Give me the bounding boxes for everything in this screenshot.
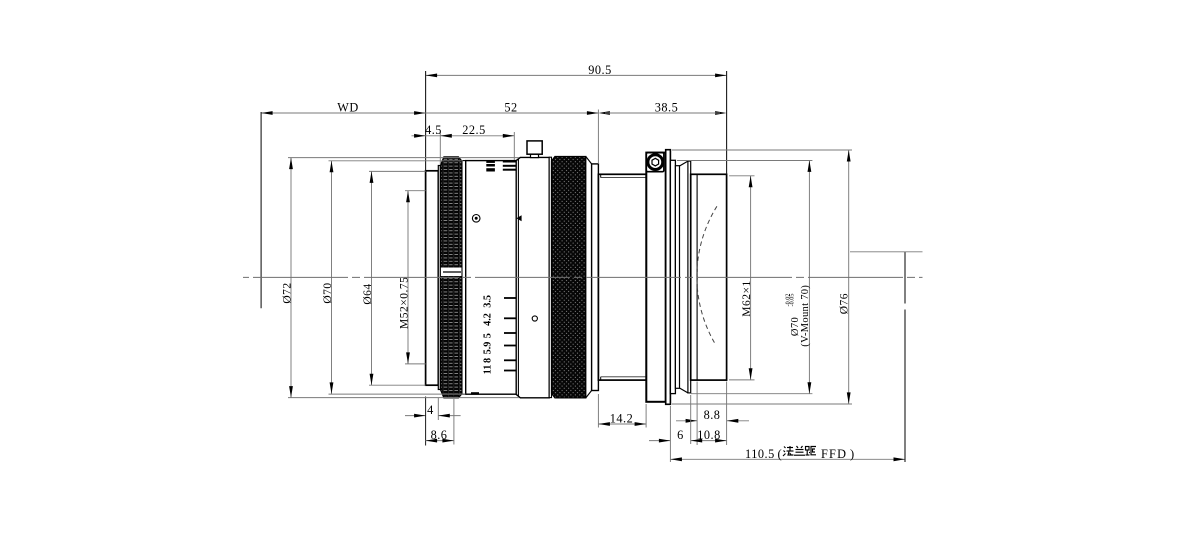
svg-text:5: 5 xyxy=(482,333,493,338)
svg-text:(: ( xyxy=(778,447,782,461)
svg-text:WD: WD xyxy=(337,100,359,114)
svg-text:11: 11 xyxy=(482,365,493,375)
svg-text:-0.05: -0.05 xyxy=(788,294,795,307)
svg-text:3.5: 3.5 xyxy=(482,295,493,308)
svg-text:5.9: 5.9 xyxy=(482,342,493,355)
svg-text:4: 4 xyxy=(427,403,434,417)
svg-text:): ) xyxy=(850,447,854,461)
svg-text:M52×0.75: M52×0.75 xyxy=(398,277,410,329)
svg-text:90.5: 90.5 xyxy=(588,63,612,77)
svg-text:14.2: 14.2 xyxy=(610,411,634,425)
svg-text:Ø64: Ø64 xyxy=(362,283,374,304)
svg-text:6: 6 xyxy=(677,428,684,442)
svg-text:4.2: 4.2 xyxy=(482,313,493,326)
svg-text:10.8: 10.8 xyxy=(697,428,721,442)
svg-text:Ø72: Ø72 xyxy=(281,282,293,303)
svg-text:4.5: 4.5 xyxy=(425,123,442,137)
svg-text:22.5: 22.5 xyxy=(462,123,486,137)
svg-text:Ø70: Ø70 xyxy=(322,282,334,303)
svg-text:Ø76: Ø76 xyxy=(839,293,851,314)
svg-text:8: 8 xyxy=(482,358,493,363)
svg-text:38.5: 38.5 xyxy=(655,100,679,114)
svg-text:(V-Mount 70): (V-Mount 70) xyxy=(800,285,811,347)
svg-text:52: 52 xyxy=(504,100,517,114)
svg-text:110.5: 110.5 xyxy=(745,447,775,461)
svg-text:M62×1: M62×1 xyxy=(741,280,753,316)
svg-text:8.8: 8.8 xyxy=(704,408,721,422)
svg-text:FFD: FFD xyxy=(821,447,847,461)
svg-text:8.6: 8.6 xyxy=(431,428,448,442)
